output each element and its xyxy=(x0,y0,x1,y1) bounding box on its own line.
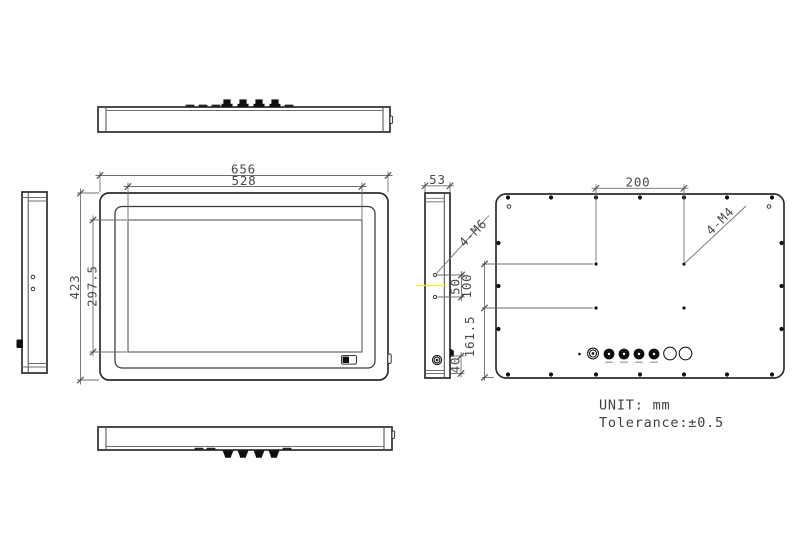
dim-screen-height-label: 297.5 xyxy=(85,265,100,307)
osd-button-icon xyxy=(254,104,265,107)
led-indicator xyxy=(578,353,581,356)
screw-hole xyxy=(496,241,500,245)
top-view xyxy=(98,99,393,132)
flat-connector-icon xyxy=(186,105,195,108)
mount-hole xyxy=(31,287,35,291)
vesa-hole xyxy=(594,306,597,309)
io-connectors-bottom xyxy=(223,451,280,458)
side-view: 53 4-M6 50 40 xyxy=(416,172,490,378)
dim-depth-label: 53 xyxy=(429,172,446,187)
osd-button-icon xyxy=(255,99,262,104)
connector-label-mark xyxy=(605,362,613,363)
connector-plug-hole xyxy=(664,347,677,360)
vesa-hole xyxy=(594,262,597,265)
bottom-view xyxy=(98,427,395,458)
screw-hole xyxy=(779,284,783,288)
screw-hole xyxy=(594,372,598,376)
screw-hole xyxy=(506,372,510,376)
back-view: 200 4-M4 100 161.5 xyxy=(459,174,784,380)
bottom-view-side-bump xyxy=(392,431,395,439)
vesa-hole xyxy=(682,306,685,309)
brand-logo-fill xyxy=(343,357,349,363)
mount-hole xyxy=(31,275,35,279)
left-side-view xyxy=(17,192,48,373)
flat-connector-icon xyxy=(285,105,294,108)
osd-button-icon xyxy=(238,104,249,107)
screw-hole xyxy=(549,372,553,376)
screw-hole xyxy=(638,195,642,199)
m6-mount-hole xyxy=(433,295,436,298)
m12-connector-pin xyxy=(653,353,655,355)
panel-pc-dimension-drawing: 656 528 423 297.5 xyxy=(0,0,800,560)
drawing-notes: UNIT: mm Tolerance:±0.5 xyxy=(599,398,724,432)
m12-connector-pin xyxy=(608,353,610,355)
screw-hole xyxy=(682,372,686,376)
flat-connector-icon xyxy=(212,105,221,108)
io-connector-icon xyxy=(238,451,249,458)
screw-hole xyxy=(725,195,729,199)
dim-vesa-height-label: 100 xyxy=(459,274,474,299)
dim-vesa-width-label: 200 xyxy=(626,174,651,189)
osd-button-icon xyxy=(222,104,233,107)
top-view-side-bump xyxy=(390,116,393,124)
dim-vesa-bottom-label: 161.5 xyxy=(462,316,477,358)
dim-outer-height-label: 423 xyxy=(67,275,82,300)
ground-screw-icon xyxy=(592,352,595,355)
flat-connector-icon xyxy=(283,448,292,450)
screw-hole xyxy=(638,372,642,376)
front-right-bump xyxy=(388,354,391,364)
osd-button-icon xyxy=(271,99,278,104)
io-connector-icon xyxy=(223,451,234,458)
osd-button-icon xyxy=(239,99,246,104)
pilot-hole xyxy=(507,205,511,209)
io-connector-icon xyxy=(269,451,280,458)
flat-connector-icon xyxy=(207,448,216,450)
ground-screw-icon-side xyxy=(432,355,441,364)
flat-connector-icon xyxy=(199,105,208,108)
ground-screw-icon xyxy=(436,359,439,362)
osd-buttons-top xyxy=(222,99,281,107)
left-side-latch xyxy=(17,340,24,349)
dim-bottom-offset-label: 40 xyxy=(448,357,463,374)
technical-drawing-page: 656 528 423 297.5 xyxy=(0,0,800,560)
screw-hole xyxy=(770,372,774,376)
screw-hole xyxy=(770,195,774,199)
connector-plug-hole xyxy=(679,347,692,360)
side-mount-thread-label: 4-M6 xyxy=(456,216,490,250)
screw-hole xyxy=(779,327,783,331)
io-connector-icon xyxy=(254,451,265,458)
screw-hole xyxy=(496,284,500,288)
front-view: 656 528 423 297.5 xyxy=(67,162,393,385)
screw-hole xyxy=(496,327,500,331)
note-unit: UNIT: mm xyxy=(599,398,670,414)
dimension-depth: 53 xyxy=(421,172,454,192)
connector-label-mark xyxy=(635,362,643,363)
note-tolerance: Tolerance:±0.5 xyxy=(599,415,724,431)
screw-hole xyxy=(549,195,553,199)
connector-label-mark xyxy=(620,362,628,363)
connector-label-mark xyxy=(650,362,658,363)
left-side-body xyxy=(22,192,47,373)
screw-hole xyxy=(506,195,510,199)
osd-button-icon xyxy=(223,99,230,104)
m12-connector-pin xyxy=(623,353,625,355)
screw-hole xyxy=(725,372,729,376)
screw-hole xyxy=(779,241,783,245)
m12-connector-pin xyxy=(638,353,640,355)
dim-screen-width-label: 528 xyxy=(232,173,257,188)
flat-connector-icon xyxy=(195,448,204,450)
pilot-hole xyxy=(767,205,771,209)
osd-button-icon xyxy=(270,104,281,107)
